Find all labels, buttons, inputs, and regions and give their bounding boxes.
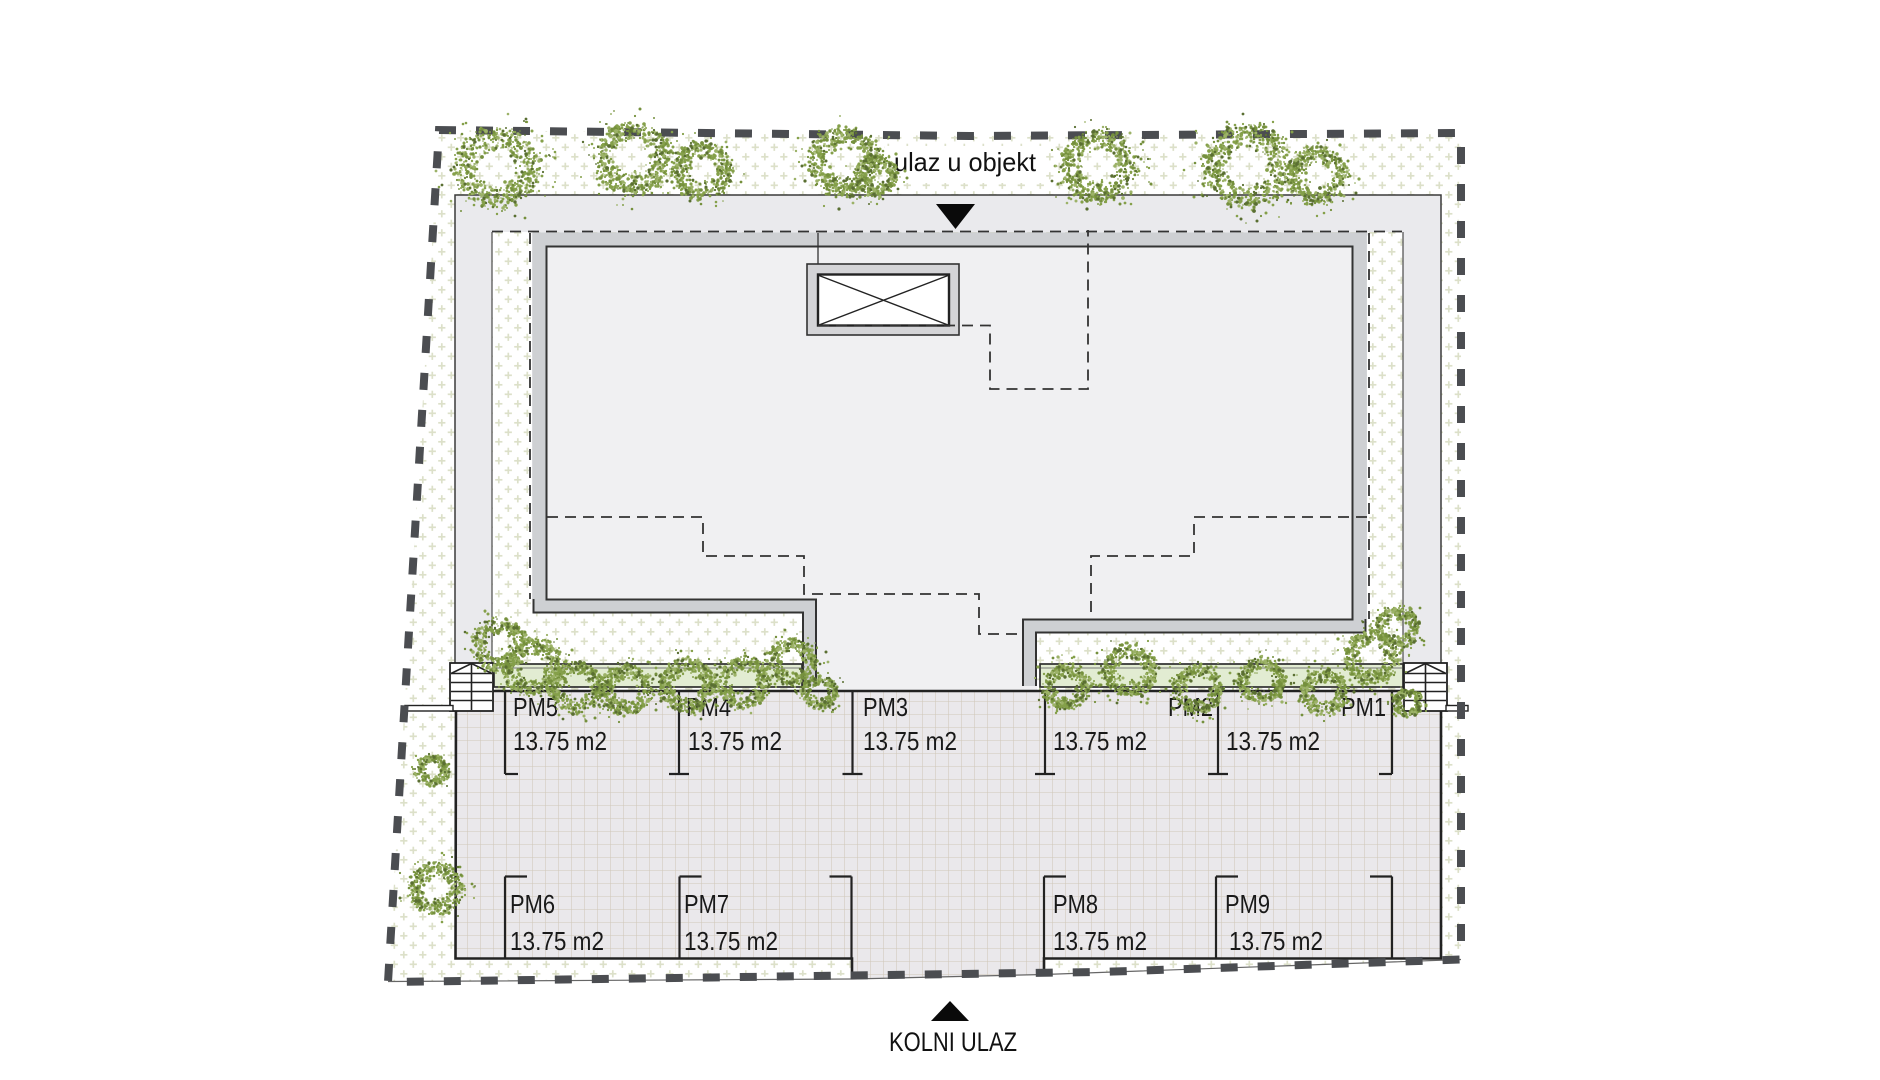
svg-text:PM8: PM8 <box>1053 889 1098 919</box>
svg-text:13.75 m2: 13.75 m2 <box>1053 926 1147 956</box>
svg-text:ulaz u objekt: ulaz u objekt <box>894 147 1037 177</box>
svg-text:PM3: PM3 <box>863 692 908 722</box>
svg-text:13.75 m2: 13.75 m2 <box>510 926 604 956</box>
svg-text:KOLNI ULAZ: KOLNI ULAZ <box>889 1027 1017 1057</box>
svg-text:13.75 m2: 13.75 m2 <box>863 726 957 756</box>
svg-text:13.75 m2: 13.75 m2 <box>684 926 778 956</box>
svg-text:13.75 m2: 13.75 m2 <box>1229 926 1323 956</box>
svg-text:PM7: PM7 <box>684 889 729 919</box>
svg-text:13.75 m2: 13.75 m2 <box>513 726 607 756</box>
svg-text:13.75 m2: 13.75 m2 <box>1226 726 1320 756</box>
svg-text:13.75 m2: 13.75 m2 <box>688 726 782 756</box>
svg-text:PM1: PM1 <box>1341 692 1386 722</box>
svg-text:13.75 m2: 13.75 m2 <box>1053 726 1147 756</box>
svg-text:PM9: PM9 <box>1225 889 1270 919</box>
svg-text:PM6: PM6 <box>510 889 555 919</box>
